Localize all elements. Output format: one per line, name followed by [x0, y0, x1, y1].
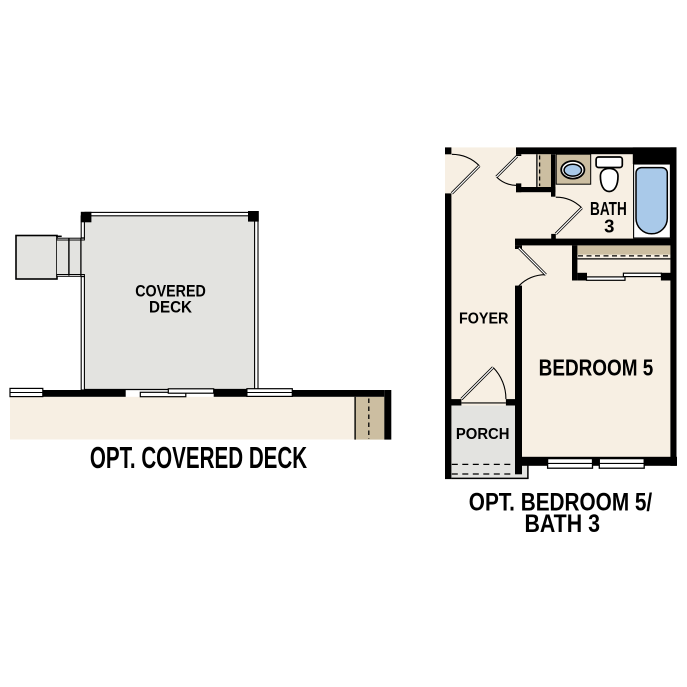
svg-text:DECK: DECK: [149, 299, 192, 317]
svg-text:3: 3: [604, 216, 614, 237]
svg-text:COVERED: COVERED: [135, 282, 206, 300]
svg-text:BEDROOM 5: BEDROOM 5: [539, 355, 654, 381]
svg-text:PORCH: PORCH: [456, 426, 510, 443]
svg-text:BATH 3: BATH 3: [524, 511, 600, 538]
svg-text:FOYER: FOYER: [459, 309, 509, 327]
svg-text:OPT. COVERED DECK: OPT. COVERED DECK: [90, 441, 307, 475]
